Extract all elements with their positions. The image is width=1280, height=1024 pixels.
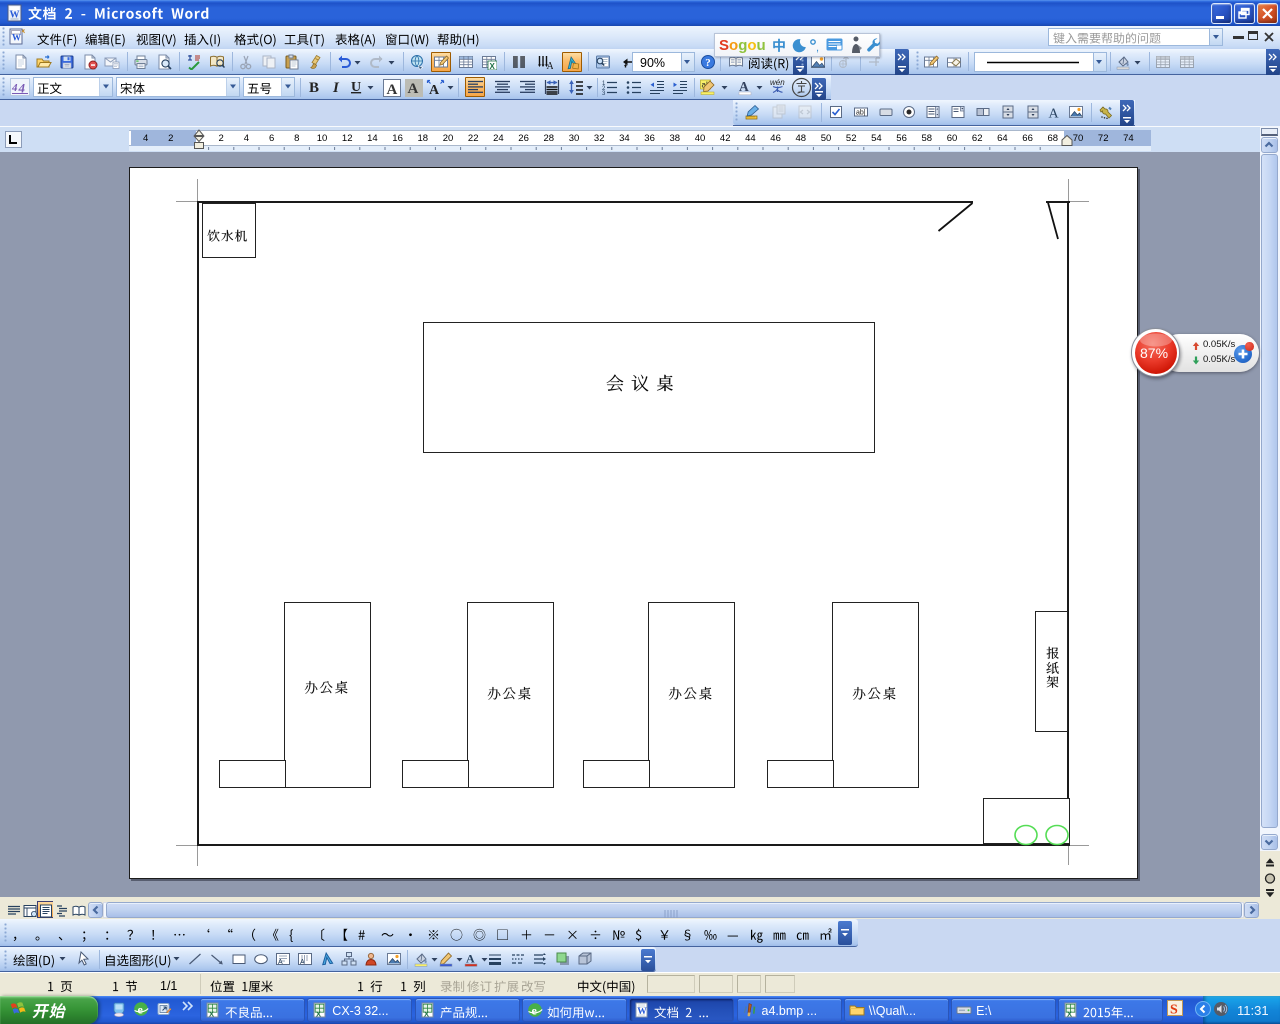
svg-text:Sogou: Sogou <box>719 37 766 54</box>
svg-text:66: 66 <box>1022 133 1033 144</box>
svg-text:A: A <box>466 952 475 966</box>
svg-text:2: 2 <box>219 133 224 144</box>
svg-text:e: e <box>138 1003 144 1017</box>
svg-text:4: 4 <box>11 82 18 94</box>
svg-text:X: X <box>490 62 496 70</box>
svg-text:A: A <box>1049 107 1060 121</box>
svg-text:I: I <box>332 80 340 95</box>
svg-text:72: 72 <box>1098 133 1109 144</box>
svg-text:X: X <box>316 1010 321 1019</box>
svg-text:18: 18 <box>418 133 429 144</box>
svg-text:4: 4 <box>143 133 148 144</box>
svg-text:8: 8 <box>294 133 299 144</box>
svg-text:62: 62 <box>972 133 983 144</box>
svg-text:A: A <box>387 82 398 96</box>
svg-text:10: 10 <box>317 133 328 144</box>
svg-text:38: 38 <box>670 133 681 144</box>
svg-text:W: W <box>637 1007 647 1017</box>
svg-text:,: , <box>816 42 819 53</box>
svg-text:70: 70 <box>1073 133 1084 144</box>
svg-text:58: 58 <box>922 133 933 144</box>
svg-text:4: 4 <box>18 81 26 96</box>
svg-text:40: 40 <box>695 133 706 144</box>
svg-text:U: U <box>351 80 361 95</box>
svg-text:54: 54 <box>871 133 882 144</box>
svg-text:4: 4 <box>244 133 249 144</box>
svg-text:B: B <box>309 80 319 95</box>
svg-text:44: 44 <box>745 133 756 144</box>
svg-text:?: ? <box>705 57 711 69</box>
svg-text:16: 16 <box>392 133 403 144</box>
svg-text:wén: wén <box>770 78 785 87</box>
svg-text:W: W <box>12 33 21 43</box>
svg-text:30: 30 <box>569 133 580 144</box>
svg-text:34: 34 <box>619 133 630 144</box>
svg-text:52: 52 <box>846 133 857 144</box>
svg-text:26: 26 <box>518 133 529 144</box>
svg-text:56: 56 <box>896 133 907 144</box>
svg-text:32: 32 <box>594 133 605 144</box>
svg-text:68: 68 <box>1048 133 1059 144</box>
svg-text:X: X <box>209 1010 214 1019</box>
svg-text:2: 2 <box>168 133 173 144</box>
svg-text:60: 60 <box>947 133 958 144</box>
svg-text:ab|: ab| <box>856 110 866 117</box>
svg-text:64: 64 <box>997 133 1008 144</box>
svg-text:74: 74 <box>1123 133 1134 144</box>
svg-text:22: 22 <box>468 133 479 144</box>
svg-text:A: A <box>547 61 554 70</box>
svg-text:A: A <box>278 959 283 966</box>
svg-text:A: A <box>408 81 419 95</box>
svg-text:S: S <box>1170 1003 1178 1018</box>
svg-text:36: 36 <box>644 133 655 144</box>
svg-text:46: 46 <box>770 133 781 144</box>
svg-text:3: 3 <box>602 91 606 95</box>
svg-text:A: A <box>300 959 305 966</box>
svg-text:6: 6 <box>269 133 274 144</box>
svg-text:20: 20 <box>443 133 454 144</box>
svg-text:42: 42 <box>720 133 731 144</box>
svg-text:e: e <box>531 1004 537 1018</box>
svg-text:50: 50 <box>821 133 832 144</box>
svg-text:X: X <box>424 1010 429 1019</box>
svg-text:14: 14 <box>367 133 378 144</box>
svg-text:28: 28 <box>544 133 555 144</box>
svg-text:24: 24 <box>493 133 504 144</box>
svg-text:12: 12 <box>342 133 353 144</box>
svg-text:A: A <box>429 83 440 97</box>
svg-text:48: 48 <box>796 133 807 144</box>
svg-text:X: X <box>1067 1010 1072 1019</box>
